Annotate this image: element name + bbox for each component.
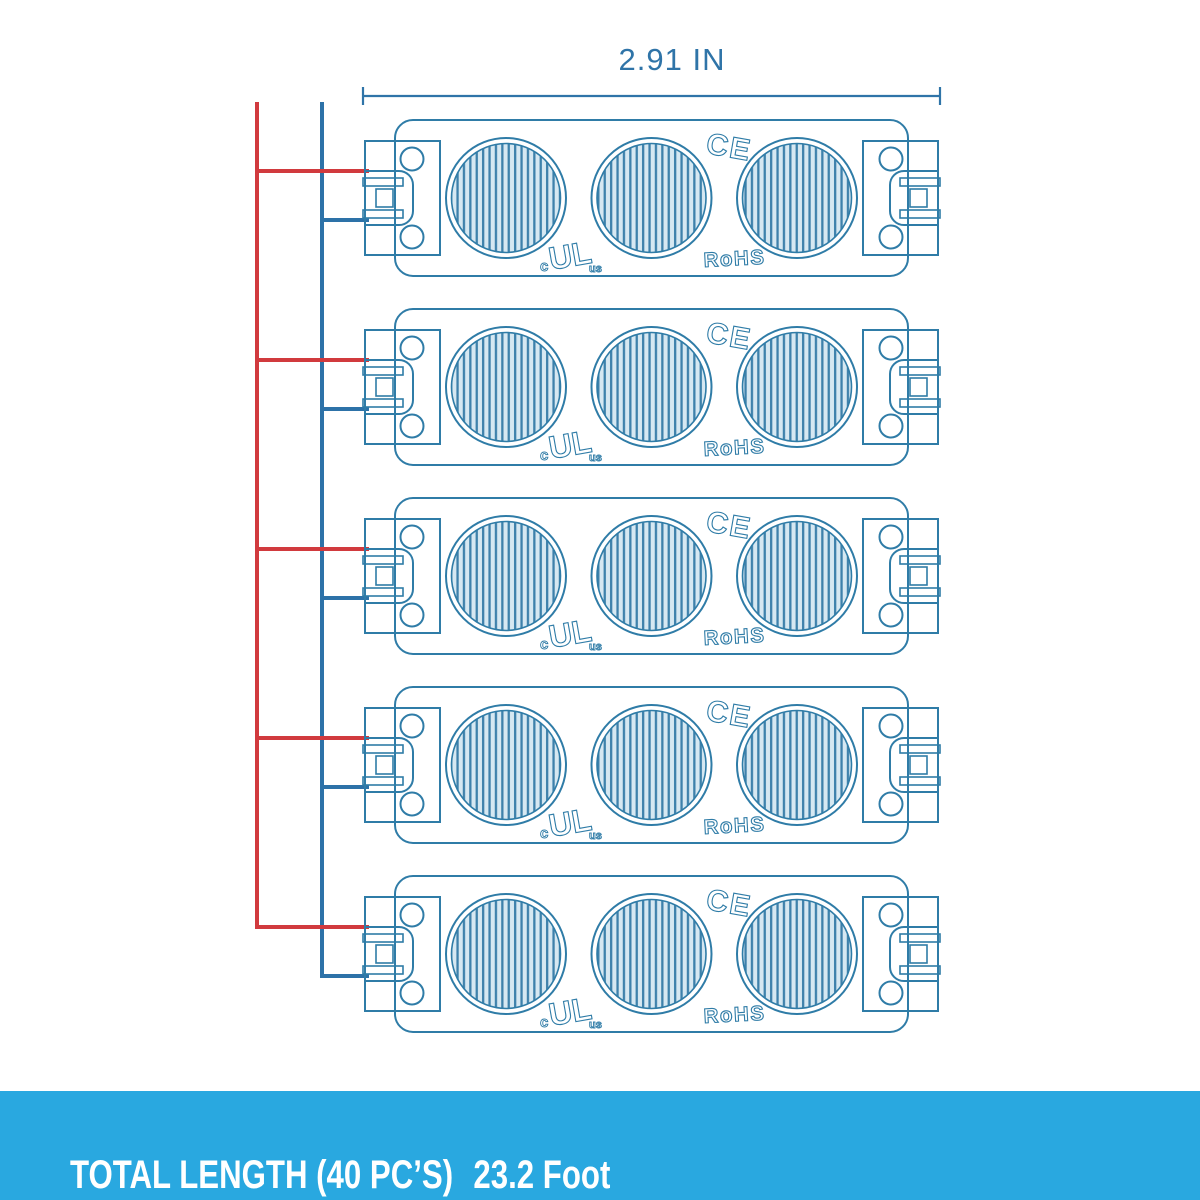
ce-mark: CE <box>704 505 755 545</box>
ce-mark: CE <box>704 316 755 356</box>
dimension-annotation: 2.91 IN <box>363 42 940 105</box>
module-graphic <box>363 120 940 276</box>
ul-mark-c: c <box>540 825 548 842</box>
led-module-5: CE c UL us RoHS <box>363 876 940 1033</box>
diagram-canvas: 2.91 IN CE c UL us RoHS <box>0 0 1200 1200</box>
ul-mark-c: c <box>540 447 548 464</box>
rohs-mark: RoHS <box>703 813 766 839</box>
ce-mark: CE <box>704 127 755 167</box>
dimension-label: 2.91 IN <box>619 42 726 77</box>
ul-mark: UL <box>546 612 594 655</box>
module-graphic <box>363 309 940 465</box>
ul-mark: UL <box>546 801 594 844</box>
total-length-label: TOTAL LENGTH (40 PC’S) <box>70 1153 453 1197</box>
ul-mark-c: c <box>540 258 548 275</box>
rohs-mark: RoHS <box>703 624 766 650</box>
led-module-4: CE c UL us RoHS <box>363 687 940 844</box>
ul-mark-c: c <box>540 1014 548 1031</box>
ul-mark: UL <box>546 423 594 466</box>
wiring-harness <box>255 102 369 976</box>
ce-mark: CE <box>704 694 755 734</box>
module-graphic <box>363 498 940 654</box>
rohs-mark: RoHS <box>703 435 766 461</box>
ul-mark-us: us <box>589 452 602 464</box>
ul-mark-us: us <box>589 1019 602 1031</box>
rohs-mark: RoHS <box>703 246 766 272</box>
rohs-mark: RoHS <box>703 1002 766 1028</box>
led-module-1: CE c UL us RoHS <box>363 120 940 277</box>
ul-mark-us: us <box>589 830 602 842</box>
footer-bar: TOTAL LENGTH (40 PC’S)23.2 Foot <box>0 1091 1200 1200</box>
ul-mark-us: us <box>589 263 602 275</box>
total-length-value: 23.2 Foot <box>473 1153 610 1197</box>
ul-mark: UL <box>546 990 594 1033</box>
led-module-2: CE c UL us RoHS <box>363 309 940 466</box>
ce-mark: CE <box>704 883 755 923</box>
module-graphic <box>363 876 940 1032</box>
ul-mark-us: us <box>589 641 602 653</box>
led-module-3: CE c UL us RoHS <box>363 498 940 655</box>
ul-mark: UL <box>546 234 594 277</box>
led-module-wiring-diagram: 2.91 IN CE c UL us RoHS <box>0 0 1200 1091</box>
total-length-text: TOTAL LENGTH (40 PC’S)23.2 Foot <box>18 1115 610 1200</box>
module-graphic <box>363 687 940 843</box>
ul-mark-c: c <box>540 636 548 653</box>
